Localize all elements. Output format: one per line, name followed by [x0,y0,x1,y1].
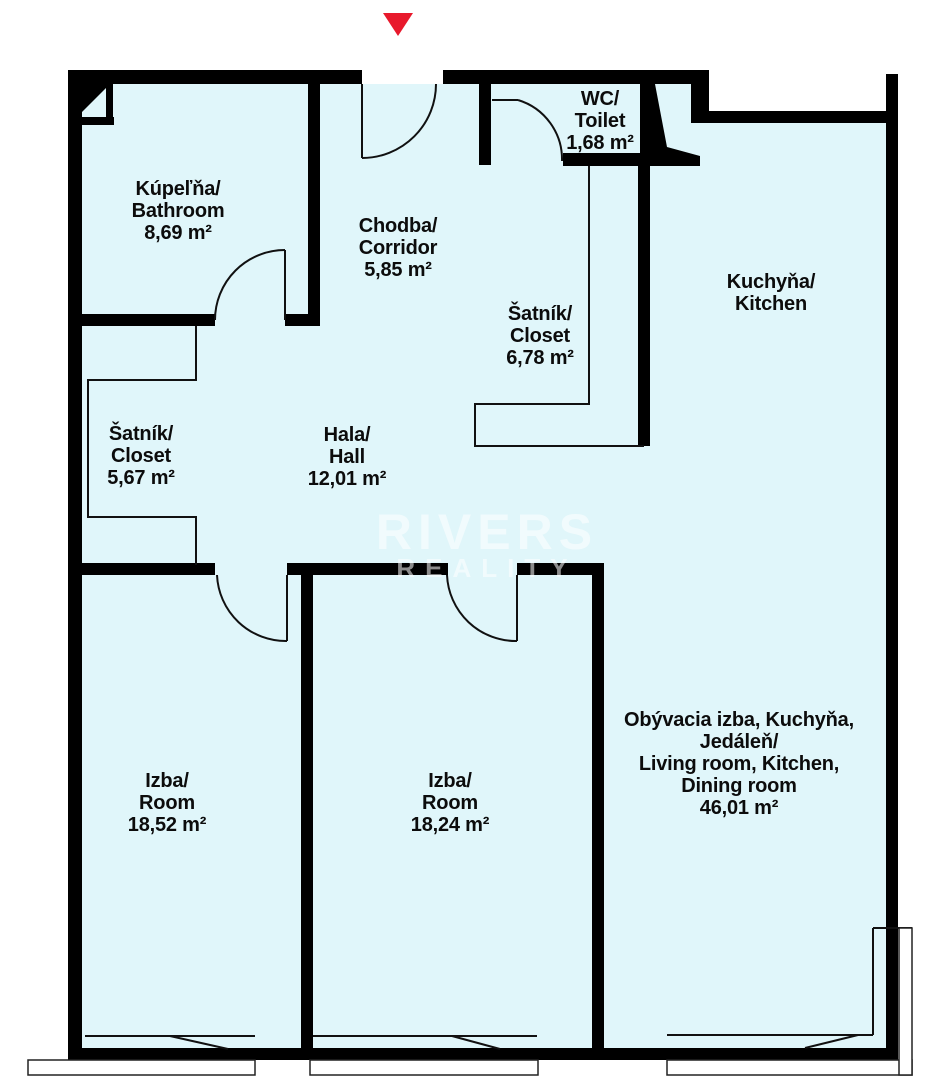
entrance-arrow-icon [383,13,413,36]
room-label-corridor: Chodba/Corridor5,85 m² [359,215,438,281]
room-label-line: Kitchen [727,293,815,315]
room-label-line: Closet [107,445,175,467]
room-label-line: 5,85 m² [359,259,438,281]
room-label-line: Living room, Kitchen, [624,753,854,775]
room-label-line: 12,01 m² [308,468,386,490]
room-label-line: 5,67 m² [107,467,175,489]
room-label-kitchen: Kuchyňa/Kitchen [727,271,815,315]
room-label-hall: Hala/Hall12,01 m² [308,424,386,490]
room-label-closet-hall: Šatník/Closet5,67 m² [107,423,175,489]
room-label-line: Hall [308,446,386,468]
room-label-line: Room [411,792,489,814]
room-label-line: Hala/ [308,424,386,446]
room-label-line: Jedáleň/ [624,731,854,753]
room-label-line: Izba/ [411,770,489,792]
room-label-line: 6,78 m² [506,347,574,369]
room-label-line: Šatník/ [107,423,175,445]
room-label-line: Toilet [566,110,634,132]
room-label-line: Kuchyňa/ [727,271,815,293]
room-label-line: Corridor [359,237,438,259]
room-label-line: Bathroom [132,200,225,222]
room-label-line: 1,68 m² [566,132,634,154]
room-label-line: WC/ [566,88,634,110]
room-label-line: Kúpeľňa/ [132,178,225,200]
room-label-line: 18,24 m² [411,814,489,836]
room-label-living: Obývacia izba, Kuchyňa,Jedáleň/Living ro… [624,709,854,819]
floor-plan-drawing [0,0,941,1080]
room-label-line: Chodba/ [359,215,438,237]
room-label-room-2: Izba/Room18,24 m² [411,770,489,836]
room-label-closet-main: Šatník/Closet6,78 m² [506,303,574,369]
room-label-line: 18,52 m² [128,814,206,836]
room-label-line: Room [128,792,206,814]
room-label-line: Closet [506,325,574,347]
floor-plan: RIVERS REALITY Kúpeľňa/Bathroom8,69 m²Ch… [0,0,941,1080]
room-label-line: 8,69 m² [132,222,225,244]
room-label-line: Šatník/ [506,303,574,325]
room-label-line: Obývacia izba, Kuchyňa, [624,709,854,731]
room-label-bathroom: Kúpeľňa/Bathroom8,69 m² [132,178,225,244]
room-label-wc: WC/Toilet1,68 m² [566,88,634,154]
room-label-line: Izba/ [128,770,206,792]
room-label-room-1: Izba/Room18,52 m² [128,770,206,836]
room-label-line: 46,01 m² [624,797,854,819]
room-label-line: Dining room [624,775,854,797]
